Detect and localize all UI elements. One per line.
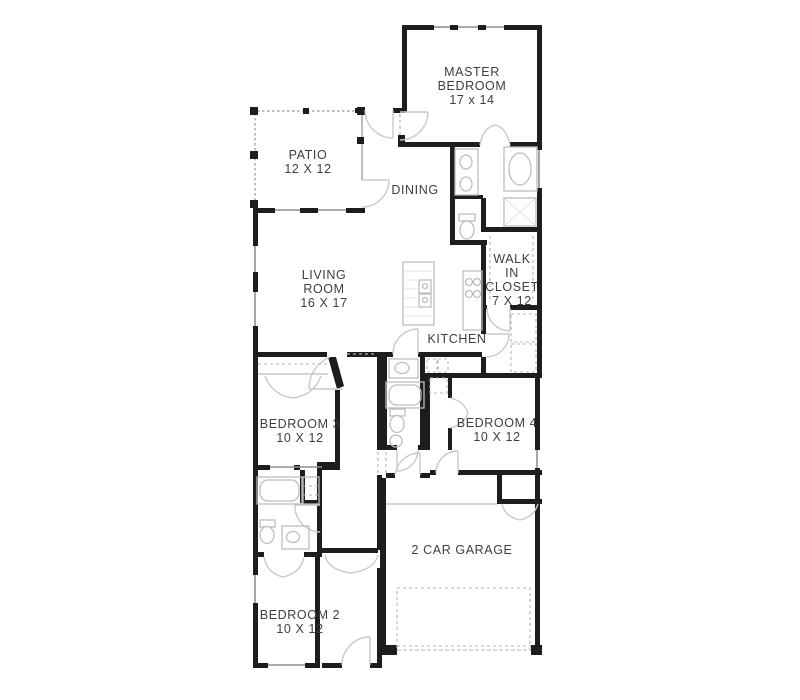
floor-plan: MASTER BEDROOM 17 x 14 PATIO 12 X 12 DIN…	[0, 0, 800, 700]
room-label-bedroom-3: BEDROOM 3 10 X 12	[260, 417, 340, 445]
master-bath-shower	[504, 198, 536, 226]
label-line: 16 X 17	[300, 296, 347, 310]
hall-bath-toilet	[390, 409, 405, 447]
bath2-vanity	[282, 526, 309, 549]
room-label-dining: DINING	[391, 183, 438, 197]
label-line: 10 X 12	[457, 430, 537, 444]
label-line: 17 x 14	[438, 93, 507, 107]
bedroom4-closet-shelf	[430, 378, 447, 393]
label-line: LIVING	[300, 268, 347, 282]
floor-plan-drawing	[0, 0, 800, 700]
label-line: BEDROOM 2	[260, 608, 340, 622]
label-line: DINING	[391, 183, 438, 197]
master-bath-vanity	[455, 149, 478, 195]
label-line: IN	[485, 266, 539, 280]
label-line: 2 CAR GARAGE	[412, 543, 513, 557]
room-label-master-bedroom: MASTER BEDROOM 17 x 14	[438, 65, 507, 107]
fixtures	[257, 147, 537, 650]
label-line: 7 X 12	[485, 294, 539, 308]
laundry-appliances	[511, 314, 536, 372]
label-line: 10 X 12	[260, 622, 340, 636]
room-label-walk-in-closet: WALK IN CLOSET 7 X 12	[485, 252, 539, 308]
label-line: ROOM	[300, 282, 347, 296]
label-line: PATIO	[284, 148, 331, 162]
label-line: BEDROOM 4	[457, 416, 537, 430]
bath2-linen-shelves	[303, 477, 319, 504]
label-line: MASTER	[438, 65, 507, 79]
room-label-garage: 2 CAR GARAGE	[412, 543, 513, 557]
label-line: BEDROOM 3	[260, 417, 340, 431]
kitchen-cooktop-counter	[463, 271, 482, 330]
room-label-kitchen: KITCHEN	[427, 332, 486, 346]
master-bath-tub	[504, 147, 537, 191]
label-line: 12 X 12	[284, 162, 331, 176]
room-label-bedroom-2: BEDROOM 2 10 X 12	[260, 608, 340, 636]
hall-bath-tub	[386, 382, 424, 408]
label-line: WALK	[485, 252, 539, 266]
kitchen-island	[403, 262, 434, 325]
bath2-tub	[257, 477, 302, 504]
label-line: KITCHEN	[427, 332, 486, 346]
label-line: 10 X 12	[260, 431, 340, 445]
room-label-patio: PATIO 12 X 12	[284, 148, 331, 176]
garage-elements	[386, 504, 531, 650]
bath2-toilet	[260, 520, 275, 544]
laundry-nook-appliances	[427, 359, 448, 372]
hall-bath-vanity	[389, 359, 418, 378]
label-line: CLOSET	[485, 280, 539, 294]
label-line: BEDROOM	[438, 79, 507, 93]
room-label-living-room: LIVING ROOM 16 X 17	[300, 268, 347, 310]
master-bath-toilet	[459, 214, 475, 239]
room-label-bedroom-4: BEDROOM 4 10 X 12	[457, 416, 537, 444]
